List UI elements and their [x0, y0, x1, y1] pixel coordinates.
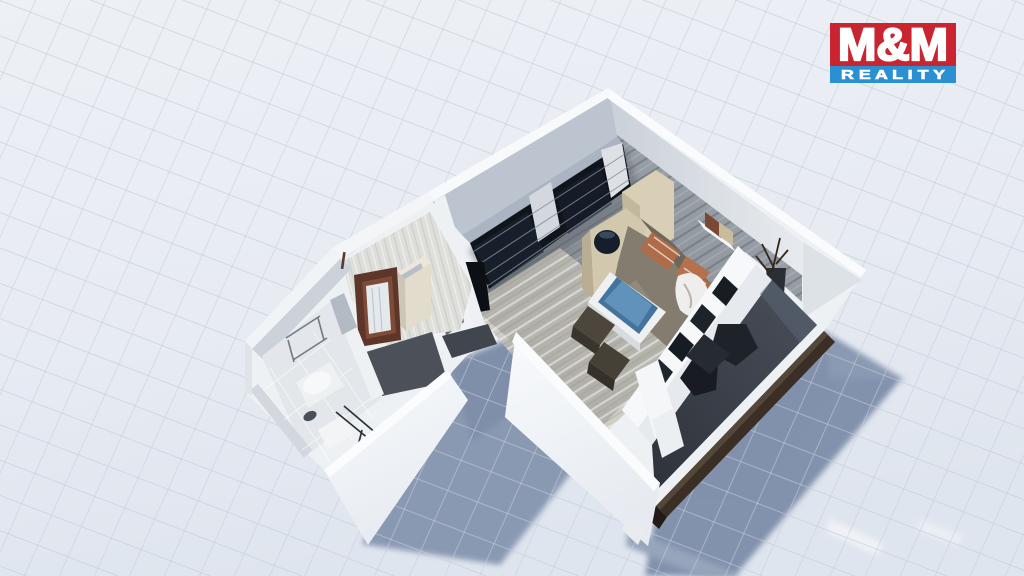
svg-text:R E A L I T Y: R E A L I T Y	[841, 68, 946, 82]
svg-text:M&M: M&M	[838, 19, 948, 70]
